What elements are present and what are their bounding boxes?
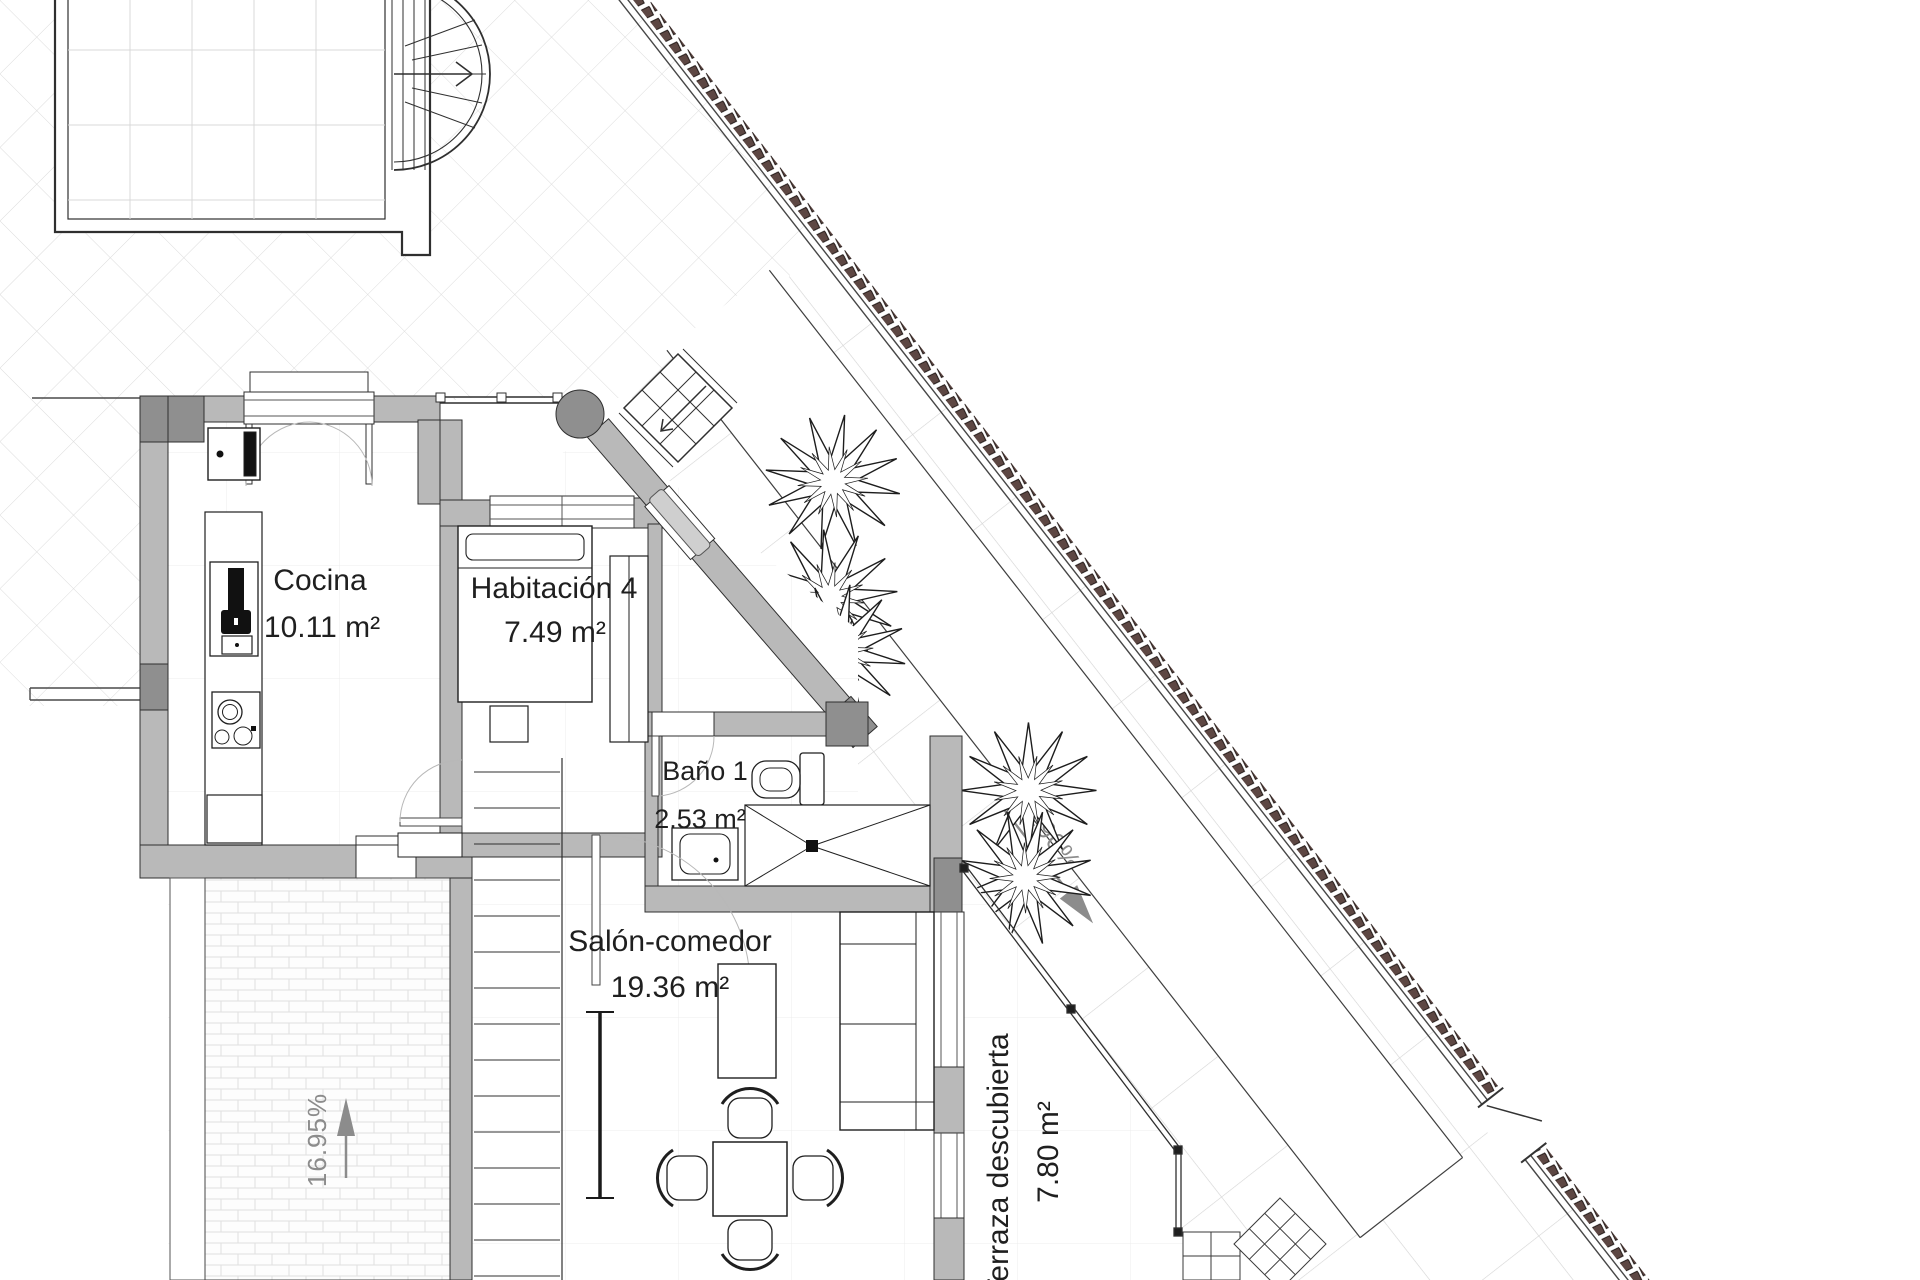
washbasin-icon <box>672 828 738 880</box>
cocina-area: 10.11 m² <box>264 611 380 644</box>
ramp: 16.95% <box>170 878 472 1280</box>
terraza-area: 7.80 m² <box>1032 1101 1065 1203</box>
bano1-label: Baño 1 <box>662 756 748 786</box>
salon-area: 19.36 m² <box>611 971 729 1004</box>
kitchen-cabinet <box>207 795 262 843</box>
dining-table-icon <box>713 1142 787 1216</box>
floor-plan-canvas: 4.90% <box>0 0 1920 1280</box>
ramp-slope-label: 16.95% <box>302 1093 332 1187</box>
habitacion4-label: Habitación 4 <box>471 572 638 605</box>
salon-east-wall <box>934 912 964 1280</box>
toilet-icon <box>752 753 824 805</box>
cooktop-icon <box>212 692 260 748</box>
sink-icon <box>210 562 258 656</box>
salon-label: Salón-comedor <box>568 925 771 958</box>
corner-column <box>168 396 204 442</box>
bedroom-window <box>490 496 634 528</box>
bano1-area: 2.53 m² <box>654 804 746 834</box>
sofa-icon <box>840 912 934 1130</box>
shower-icon <box>745 805 930 886</box>
porch-column <box>556 390 604 438</box>
fridge-icon <box>208 428 260 480</box>
terraza-label: Terraza descubierta <box>982 1033 1015 1280</box>
floor-plan-drawing: 4.90% <box>0 0 1920 1280</box>
cocina-label: Cocina <box>273 564 367 597</box>
roof-terrace-structure <box>55 0 490 255</box>
bed-icon <box>458 526 592 702</box>
habitacion4-area: 7.49 m² <box>504 616 606 649</box>
bedside-stool-icon <box>490 706 528 742</box>
